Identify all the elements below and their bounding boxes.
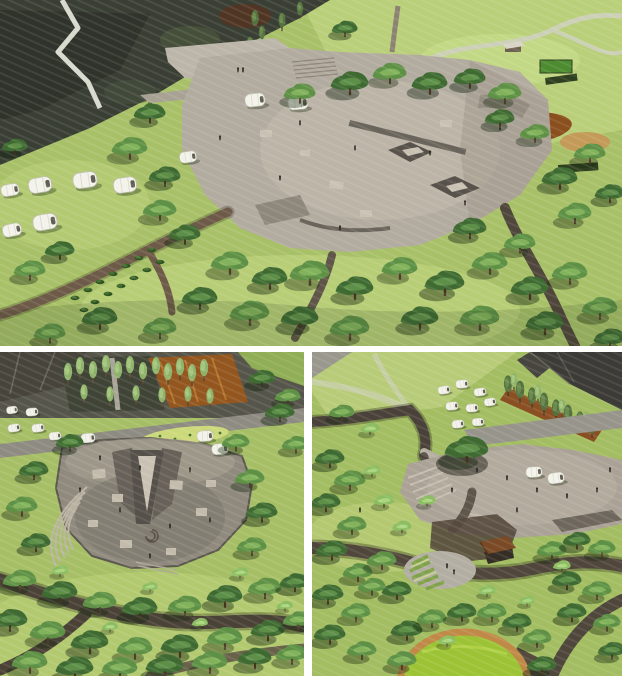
plaza-closeup-rendering	[0, 352, 304, 676]
bottom-row	[0, 352, 622, 676]
rendering-collage	[0, 0, 622, 676]
panel-aerial-overview	[0, 0, 622, 346]
panel-plaza-closeup	[0, 352, 304, 676]
campground-rendering	[312, 352, 622, 676]
panel-campground-view	[312, 352, 622, 676]
aerial-overview-rendering	[0, 0, 622, 346]
